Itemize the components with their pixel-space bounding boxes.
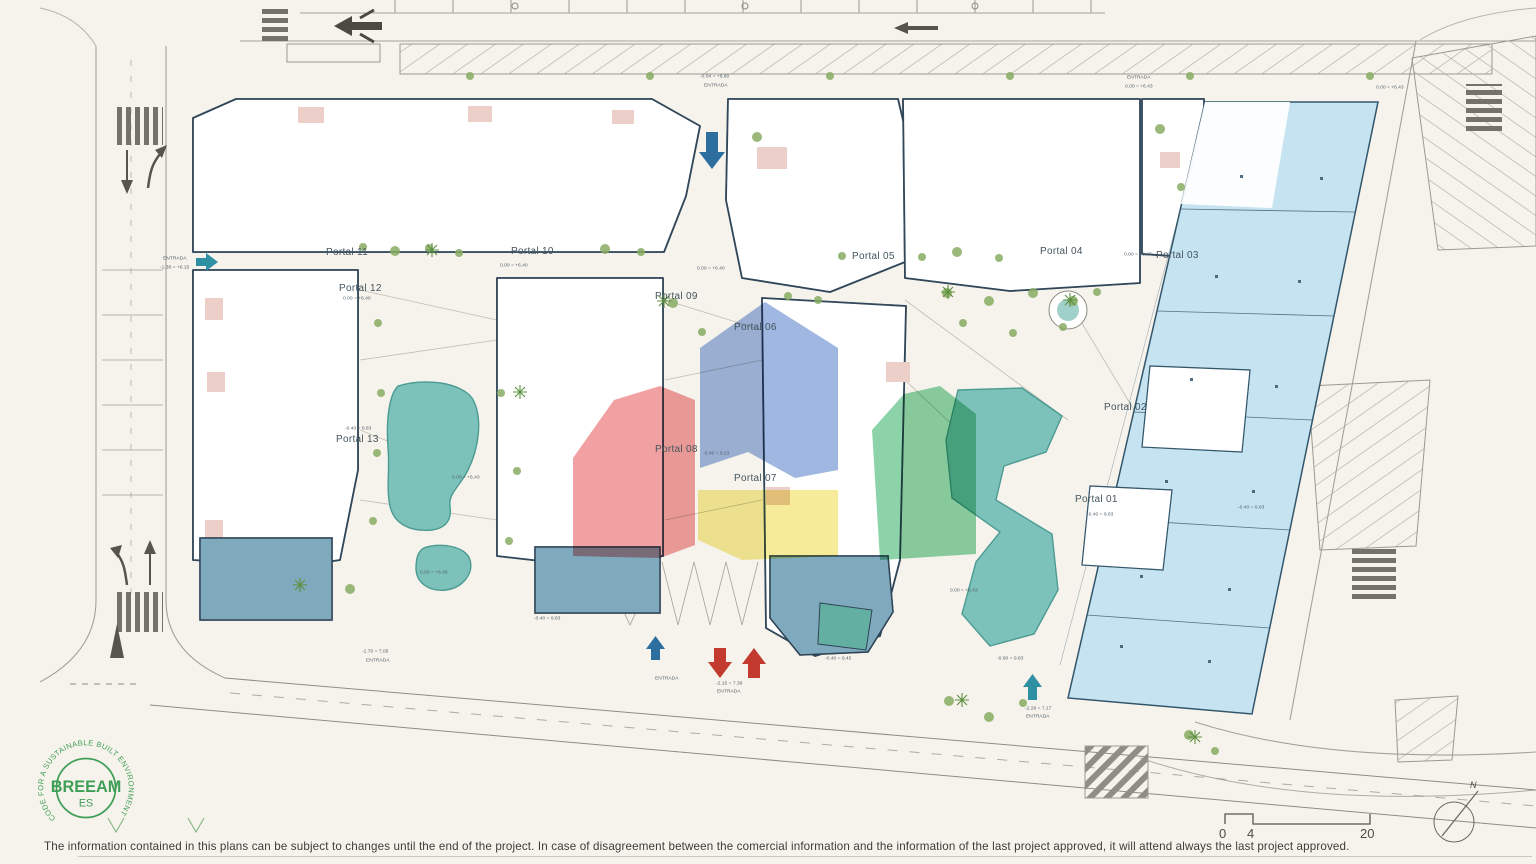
pond-west	[416, 545, 471, 590]
disclaimer-text: The information contained in this plans …	[44, 840, 1349, 853]
logo-title: BREEAM	[51, 778, 122, 796]
north-label: N	[1470, 780, 1477, 790]
site-plan-drawing	[0, 0, 1536, 864]
logo-subtitle: ES	[79, 797, 93, 809]
overlay-yellow	[698, 490, 838, 560]
breeam-logo: CODE FOR A SUSTAINABLE BUILT ENVIRONMENT…	[30, 732, 142, 844]
footer-rule	[78, 856, 1532, 857]
site-plan-canvas: Portal 11Portal 10Portal 12Portal 09Port…	[0, 0, 1536, 864]
